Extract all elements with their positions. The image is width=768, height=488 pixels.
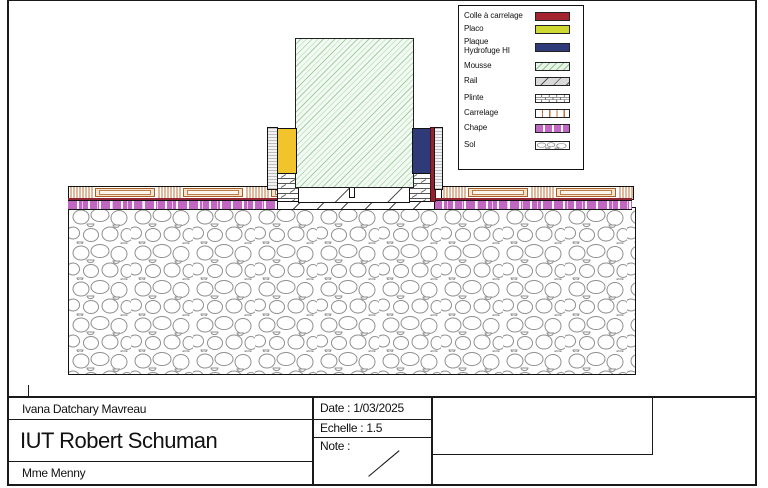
- page-border-left: [7, 0, 9, 486]
- legend-item: Plinte: [459, 93, 583, 107]
- titleblock-top-line: [7, 396, 756, 398]
- chape-swatch: [535, 124, 570, 133]
- legend-label: Plaque Hydrofuge HI: [464, 37, 516, 55]
- legend-item: Placo: [459, 24, 583, 38]
- wall-base-box: [298, 186, 410, 203]
- institution-name: IUT Robert Schuman: [20, 428, 217, 454]
- right-box-vline: [652, 396, 653, 455]
- legend-label: Sol: [464, 140, 530, 149]
- row-line-author: [7, 419, 313, 420]
- page-border-bottom: [7, 484, 756, 486]
- row-line-date: [312, 419, 432, 420]
- legend-item: Sol: [459, 140, 583, 154]
- col2-divider: [431, 396, 433, 485]
- placo-board: [277, 128, 297, 174]
- author-name: Ivana Datchary Mavreau: [22, 402, 146, 416]
- note-label: Note :: [320, 439, 350, 453]
- drawing-sheet: Colle à carrelage Placo Plaque Hydrofuge…: [0, 0, 768, 488]
- row-line-scale: [312, 437, 432, 438]
- legend-label: Mousse: [464, 61, 530, 70]
- legend-label: Plinte: [464, 93, 530, 102]
- legend-item: Plaque Hydrofuge HI: [459, 37, 583, 59]
- legend-label: Rail: [464, 76, 530, 85]
- note-diagonal-line: [368, 450, 400, 477]
- supervisor-name: Mme Menny: [22, 466, 85, 480]
- legend-item: Mousse: [459, 61, 583, 75]
- plaque-hydrofuge-swatch: [535, 43, 570, 52]
- rail-swatch: [535, 77, 570, 86]
- mousse-wall: [295, 38, 414, 188]
- sol-swatch: [535, 141, 570, 150]
- sol-ground-layer: [68, 207, 636, 375]
- rail-left: [267, 127, 279, 190]
- plinte-swatch: [535, 94, 570, 103]
- legend-label: Colle à carrelage: [464, 11, 530, 20]
- date-value: Date : 1/03/2025: [320, 401, 404, 415]
- chape-layer-right: [433, 200, 632, 210]
- row-line-institution: [7, 461, 313, 462]
- legend-label: Placo: [464, 24, 530, 33]
- legend-label: Chape: [464, 123, 530, 132]
- colle-swatch: [535, 12, 570, 21]
- rail-right: [434, 127, 443, 190]
- legend-item: Chape: [459, 123, 583, 137]
- page-border-right: [755, 0, 757, 486]
- legend-item: Rail: [459, 76, 583, 90]
- page-border-top: [7, 0, 756, 1]
- legend: Colle à carrelage Placo Plaque Hydrofuge…: [458, 5, 584, 170]
- scale-value: Echelle : 1.5: [320, 421, 382, 435]
- legend-item: Carrelage: [459, 108, 583, 122]
- legend-label: Carrelage: [464, 108, 530, 117]
- col1-divider: [312, 396, 314, 485]
- mousse-swatch: [535, 62, 570, 71]
- right-box-hline: [431, 454, 653, 455]
- chape-layer-left: [68, 200, 277, 210]
- carrelage-swatch: [535, 109, 570, 118]
- placo-swatch: [535, 25, 570, 34]
- legend-item: Colle à carrelage: [459, 11, 583, 25]
